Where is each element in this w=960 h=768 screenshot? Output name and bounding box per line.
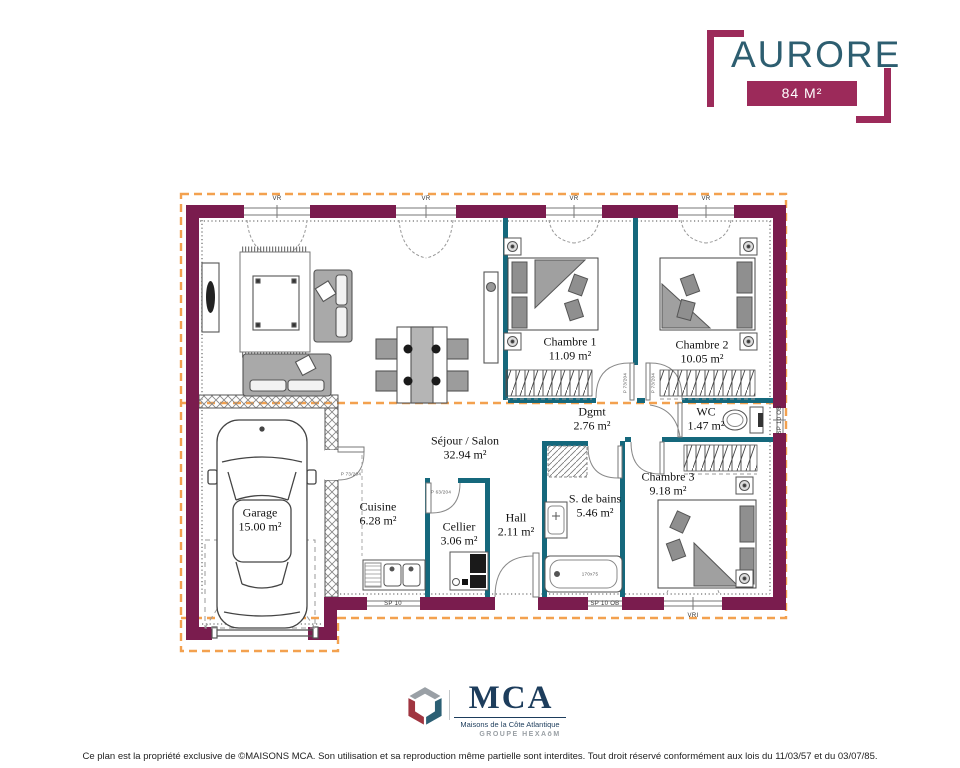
wall-label-sp10ob: SP 10 OB [591, 601, 620, 607]
door-arc-wc [650, 403, 682, 437]
window-label-vr: VR [570, 196, 579, 202]
chambre1-furniture [504, 238, 598, 399]
room-label-chambre3: Chambre 39.18 m² [642, 470, 695, 499]
door-arc-entry [495, 553, 539, 597]
closet-icon [548, 446, 587, 477]
wardrobe-icon [684, 445, 757, 474]
wall-label-sp10: SP 10 [384, 601, 402, 607]
door-label-p63: P 63/204 [431, 490, 451, 495]
bathtub-size-label: 170x75 [582, 572, 599, 577]
wardrobe-icon [506, 370, 592, 399]
french-door-icon [396, 205, 456, 258]
sideboard-icon [202, 263, 219, 332]
mca-logo-text: MCA [456, 680, 566, 717]
room-label-chambre1: Chambre 111.09 m² [544, 335, 597, 364]
window-icon [678, 205, 734, 243]
room-label-chambre2: Chambre 210.05 m² [676, 338, 729, 367]
room-label-wc: WC1.47 m² [688, 405, 725, 434]
toilet-icon [723, 407, 763, 433]
nightstand-icon [504, 238, 521, 255]
door-arc-bathroom [588, 446, 622, 478]
coffee-table-icon [253, 276, 299, 330]
room-label-sdb: S. de bains5.46 m² [569, 492, 621, 521]
door-arc-cellier [426, 483, 460, 513]
door-arc-chambre1 [596, 363, 634, 400]
copyright-disclaimer: Ce plan est la propriété exclusive de ©M… [0, 751, 960, 762]
floor-plan-drawing [0, 0, 960, 768]
bed-icon [660, 258, 755, 330]
window-label-vr: VR [273, 196, 282, 202]
wardrobe-icon [660, 370, 755, 399]
window-label-vri: VRI [688, 613, 699, 619]
chambre3-furniture [658, 445, 757, 588]
floor-plan-page: AURORE 84 M² [0, 0, 960, 768]
sofa-icon [314, 270, 352, 342]
chambre2-furniture [660, 238, 757, 399]
room-label-hall: Hall2.11 m² [498, 511, 535, 540]
door-label-p73: P 73/204 [651, 373, 656, 393]
nightstand-icon [736, 477, 753, 494]
wall-label-sp10ob-vertical: SP 10 OB [777, 406, 783, 435]
room-label-sejour: Séjour / Salon32.94 m² [431, 434, 499, 463]
door-label-p73: P 73/204 [623, 373, 628, 393]
kitchen-counter-icon [363, 560, 425, 590]
window-label-vr: VR [422, 196, 431, 202]
window-icon [546, 205, 602, 243]
mca-logo-subtitle: Maisons de la Côte Atlantique [454, 717, 566, 729]
bed-icon [508, 258, 598, 330]
window-label-vr: VR [702, 196, 711, 202]
mca-logo-group: GROUPE HEXAōM [470, 731, 570, 738]
washbasin-icon [545, 502, 567, 538]
tv-unit-icon [484, 272, 498, 363]
appliances-icon [450, 552, 488, 590]
sejour-furniture [202, 249, 498, 403]
nightstand-icon [740, 238, 757, 255]
room-label-cellier: Cellier3.06 m² [441, 520, 478, 549]
mca-logo-cube-icon [404, 686, 446, 728]
logo-divider [449, 690, 450, 720]
sofa-icon [243, 354, 331, 396]
nightstand-icon [504, 333, 521, 350]
room-label-garage: Garage15.00 m² [239, 506, 282, 535]
room-label-dgmt: Dgmt2.76 m² [574, 405, 611, 434]
room-label-cuisine: Cuisine6.28 m² [360, 500, 397, 529]
door-label-p73: P 73/204 [341, 472, 361, 477]
dining-table-icon [376, 327, 468, 403]
nightstand-icon [736, 570, 753, 587]
nightstand-icon [740, 333, 757, 350]
